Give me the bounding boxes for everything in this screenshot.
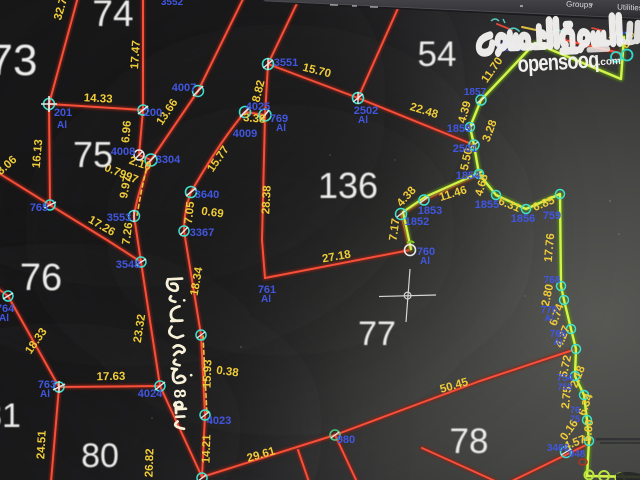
svg-text:201: 201 — [54, 107, 72, 119]
svg-text:17.76: 17.76 — [543, 233, 557, 263]
svg-text:14.33: 14.33 — [83, 92, 112, 105]
svg-text:77: 77 — [358, 315, 396, 353]
svg-text:14.21: 14.21 — [201, 434, 214, 464]
svg-text:78: 78 — [450, 422, 489, 461]
svg-text:765: 765 — [30, 202, 48, 214]
svg-text:Utilities: Utilities — [617, 3, 640, 13]
svg-text:opensooq: opensooq — [517, 46, 599, 77]
svg-text:4008: 4008 — [111, 146, 135, 158]
svg-text:73: 73 — [0, 36, 37, 85]
svg-text:1852: 1852 — [405, 216, 429, 228]
svg-text:Al: Al — [545, 313, 554, 323]
svg-text:28.38: 28.38 — [260, 185, 274, 215]
svg-text:76: 76 — [20, 257, 62, 299]
svg-text:2501: 2501 — [453, 143, 477, 155]
svg-text:▾: ▾ — [590, 3, 593, 9]
svg-text:1855: 1855 — [475, 199, 499, 211]
svg-text:136: 136 — [318, 165, 378, 206]
svg-text:Groups: Groups — [566, 0, 593, 10]
svg-text:75: 75 — [570, 414, 580, 424]
svg-text:15.93: 15.93 — [202, 359, 215, 388]
svg-text:1857: 1857 — [464, 87, 487, 98]
svg-text:4024: 4024 — [138, 388, 163, 400]
svg-text:Al: Al — [261, 294, 271, 305]
svg-text:980: 980 — [337, 434, 355, 446]
svg-text:80: 80 — [81, 437, 119, 475]
svg-text:3.38: 3.38 — [243, 112, 267, 126]
svg-text:81: 81 — [0, 397, 21, 435]
svg-text:768: 768 — [544, 275, 561, 286]
svg-text:7.05: 7.05 — [183, 200, 197, 224]
svg-text:4007: 4007 — [172, 82, 196, 94]
svg-text:3553: 3553 — [107, 212, 131, 224]
svg-text:759: 759 — [543, 210, 561, 222]
svg-text:3548: 3548 — [116, 259, 140, 271]
svg-text:75: 75 — [73, 134, 113, 175]
svg-text:17.47: 17.47 — [129, 40, 143, 70]
svg-text:54: 54 — [418, 35, 457, 74]
svg-text:200: 200 — [144, 107, 162, 119]
svg-text:.com: .com — [597, 56, 621, 68]
svg-text:3367: 3367 — [190, 227, 214, 239]
svg-text:1854: 1854 — [456, 170, 481, 182]
svg-text:755: 755 — [557, 382, 572, 392]
svg-text:4023: 4023 — [207, 415, 231, 427]
svg-text:Al: Al — [554, 337, 563, 347]
svg-text:17.63: 17.63 — [96, 371, 125, 384]
svg-text:Al: Al — [358, 115, 368, 126]
svg-text:948: 948 — [569, 449, 586, 460]
svg-text:3552: 3552 — [161, 0, 184, 8]
svg-text:1856: 1856 — [511, 213, 535, 225]
svg-text:16.13: 16.13 — [31, 139, 45, 169]
svg-text:Al: Al — [0, 313, 9, 324]
svg-text:3551: 3551 — [274, 57, 298, 69]
svg-text:3304: 3304 — [156, 154, 181, 166]
svg-text:1859: 1859 — [447, 123, 471, 135]
svg-text:Al: Al — [40, 389, 50, 400]
svg-text:Al: Al — [420, 256, 430, 267]
svg-text:24.51: 24.51 — [35, 430, 49, 460]
svg-text:3466: 3466 — [547, 443, 570, 454]
svg-text:3640: 3640 — [195, 189, 219, 201]
svg-text:8: 8 — [170, 389, 190, 399]
svg-text:Al: Al — [276, 123, 286, 134]
svg-text:Al: Al — [57, 120, 67, 131]
svg-text:26.82: 26.82 — [144, 448, 157, 477]
svg-text:6.96: 6.96 — [120, 120, 134, 143]
svg-text:4009: 4009 — [233, 128, 257, 140]
svg-text:74: 74 — [92, 0, 133, 34]
svg-text:4025: 4025 — [246, 101, 270, 113]
